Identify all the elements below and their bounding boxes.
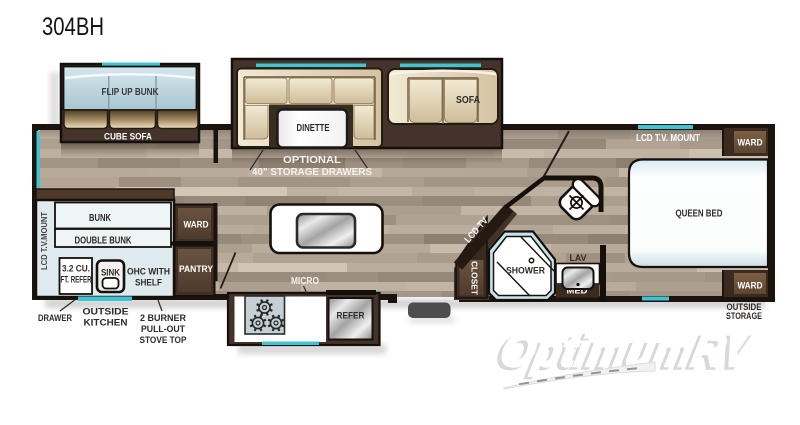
svg-text:WARD: WARD: [738, 138, 763, 149]
svg-text:DOUBLE BUNK: DOUBLE BUNK: [75, 236, 133, 247]
svg-text:OUTSIDE: OUTSIDE: [83, 307, 129, 318]
svg-text:LAV: LAV: [570, 253, 588, 264]
svg-text:STOVE TOP: STOVE TOP: [140, 335, 188, 346]
svg-text:SINK: SINK: [101, 268, 120, 278]
svg-text:2 BURNER: 2 BURNER: [140, 313, 186, 324]
svg-text:FT. REFER: FT. REFER: [61, 275, 92, 285]
svg-text:LCD T.V.MOUNT: LCD T.V.MOUNT: [39, 211, 49, 270]
svg-text:SHELF: SHELF: [135, 278, 162, 288]
svg-text:SHOWER: SHOWER: [506, 266, 545, 277]
svg-text:FLIP UP BUNK: FLIP UP BUNK: [102, 87, 160, 98]
svg-text:WARD: WARD: [738, 281, 763, 292]
svg-text:STORAGE: STORAGE: [726, 311, 762, 322]
svg-text:DINETTE: DINETTE: [297, 123, 330, 134]
svg-text:OPTIONAL: OPTIONAL: [283, 155, 341, 166]
svg-text:PULL-OUT: PULL-OUT: [141, 324, 185, 335]
svg-text:WARD: WARD: [184, 220, 209, 231]
svg-text:304BH: 304BH: [42, 13, 104, 41]
svg-text:REFER: REFER: [337, 311, 365, 322]
svg-text:KITCHEN: KITCHEN: [84, 318, 128, 329]
svg-text:PANTRY: PANTRY: [179, 264, 214, 275]
svg-text:CUBE SOFA: CUBE SOFA: [104, 132, 152, 143]
svg-text:3.2 CU.: 3.2 CU.: [62, 264, 90, 274]
svg-text:DRAWER: DRAWER: [38, 313, 72, 324]
svg-text:LCD T.V. MOUNT: LCD T.V. MOUNT: [636, 133, 700, 144]
svg-text:40" STORAGE DRAWERS: 40" STORAGE DRAWERS: [252, 167, 372, 178]
svg-text:QUEEN BED: QUEEN BED: [676, 209, 723, 220]
svg-text:OHC WITH: OHC WITH: [127, 267, 170, 277]
svg-text:CLOSET: CLOSET: [470, 261, 479, 295]
svg-text:MICRO: MICRO: [291, 276, 319, 287]
svg-text:BUNK: BUNK: [89, 213, 112, 224]
svg-text:SOFA: SOFA: [456, 95, 480, 106]
